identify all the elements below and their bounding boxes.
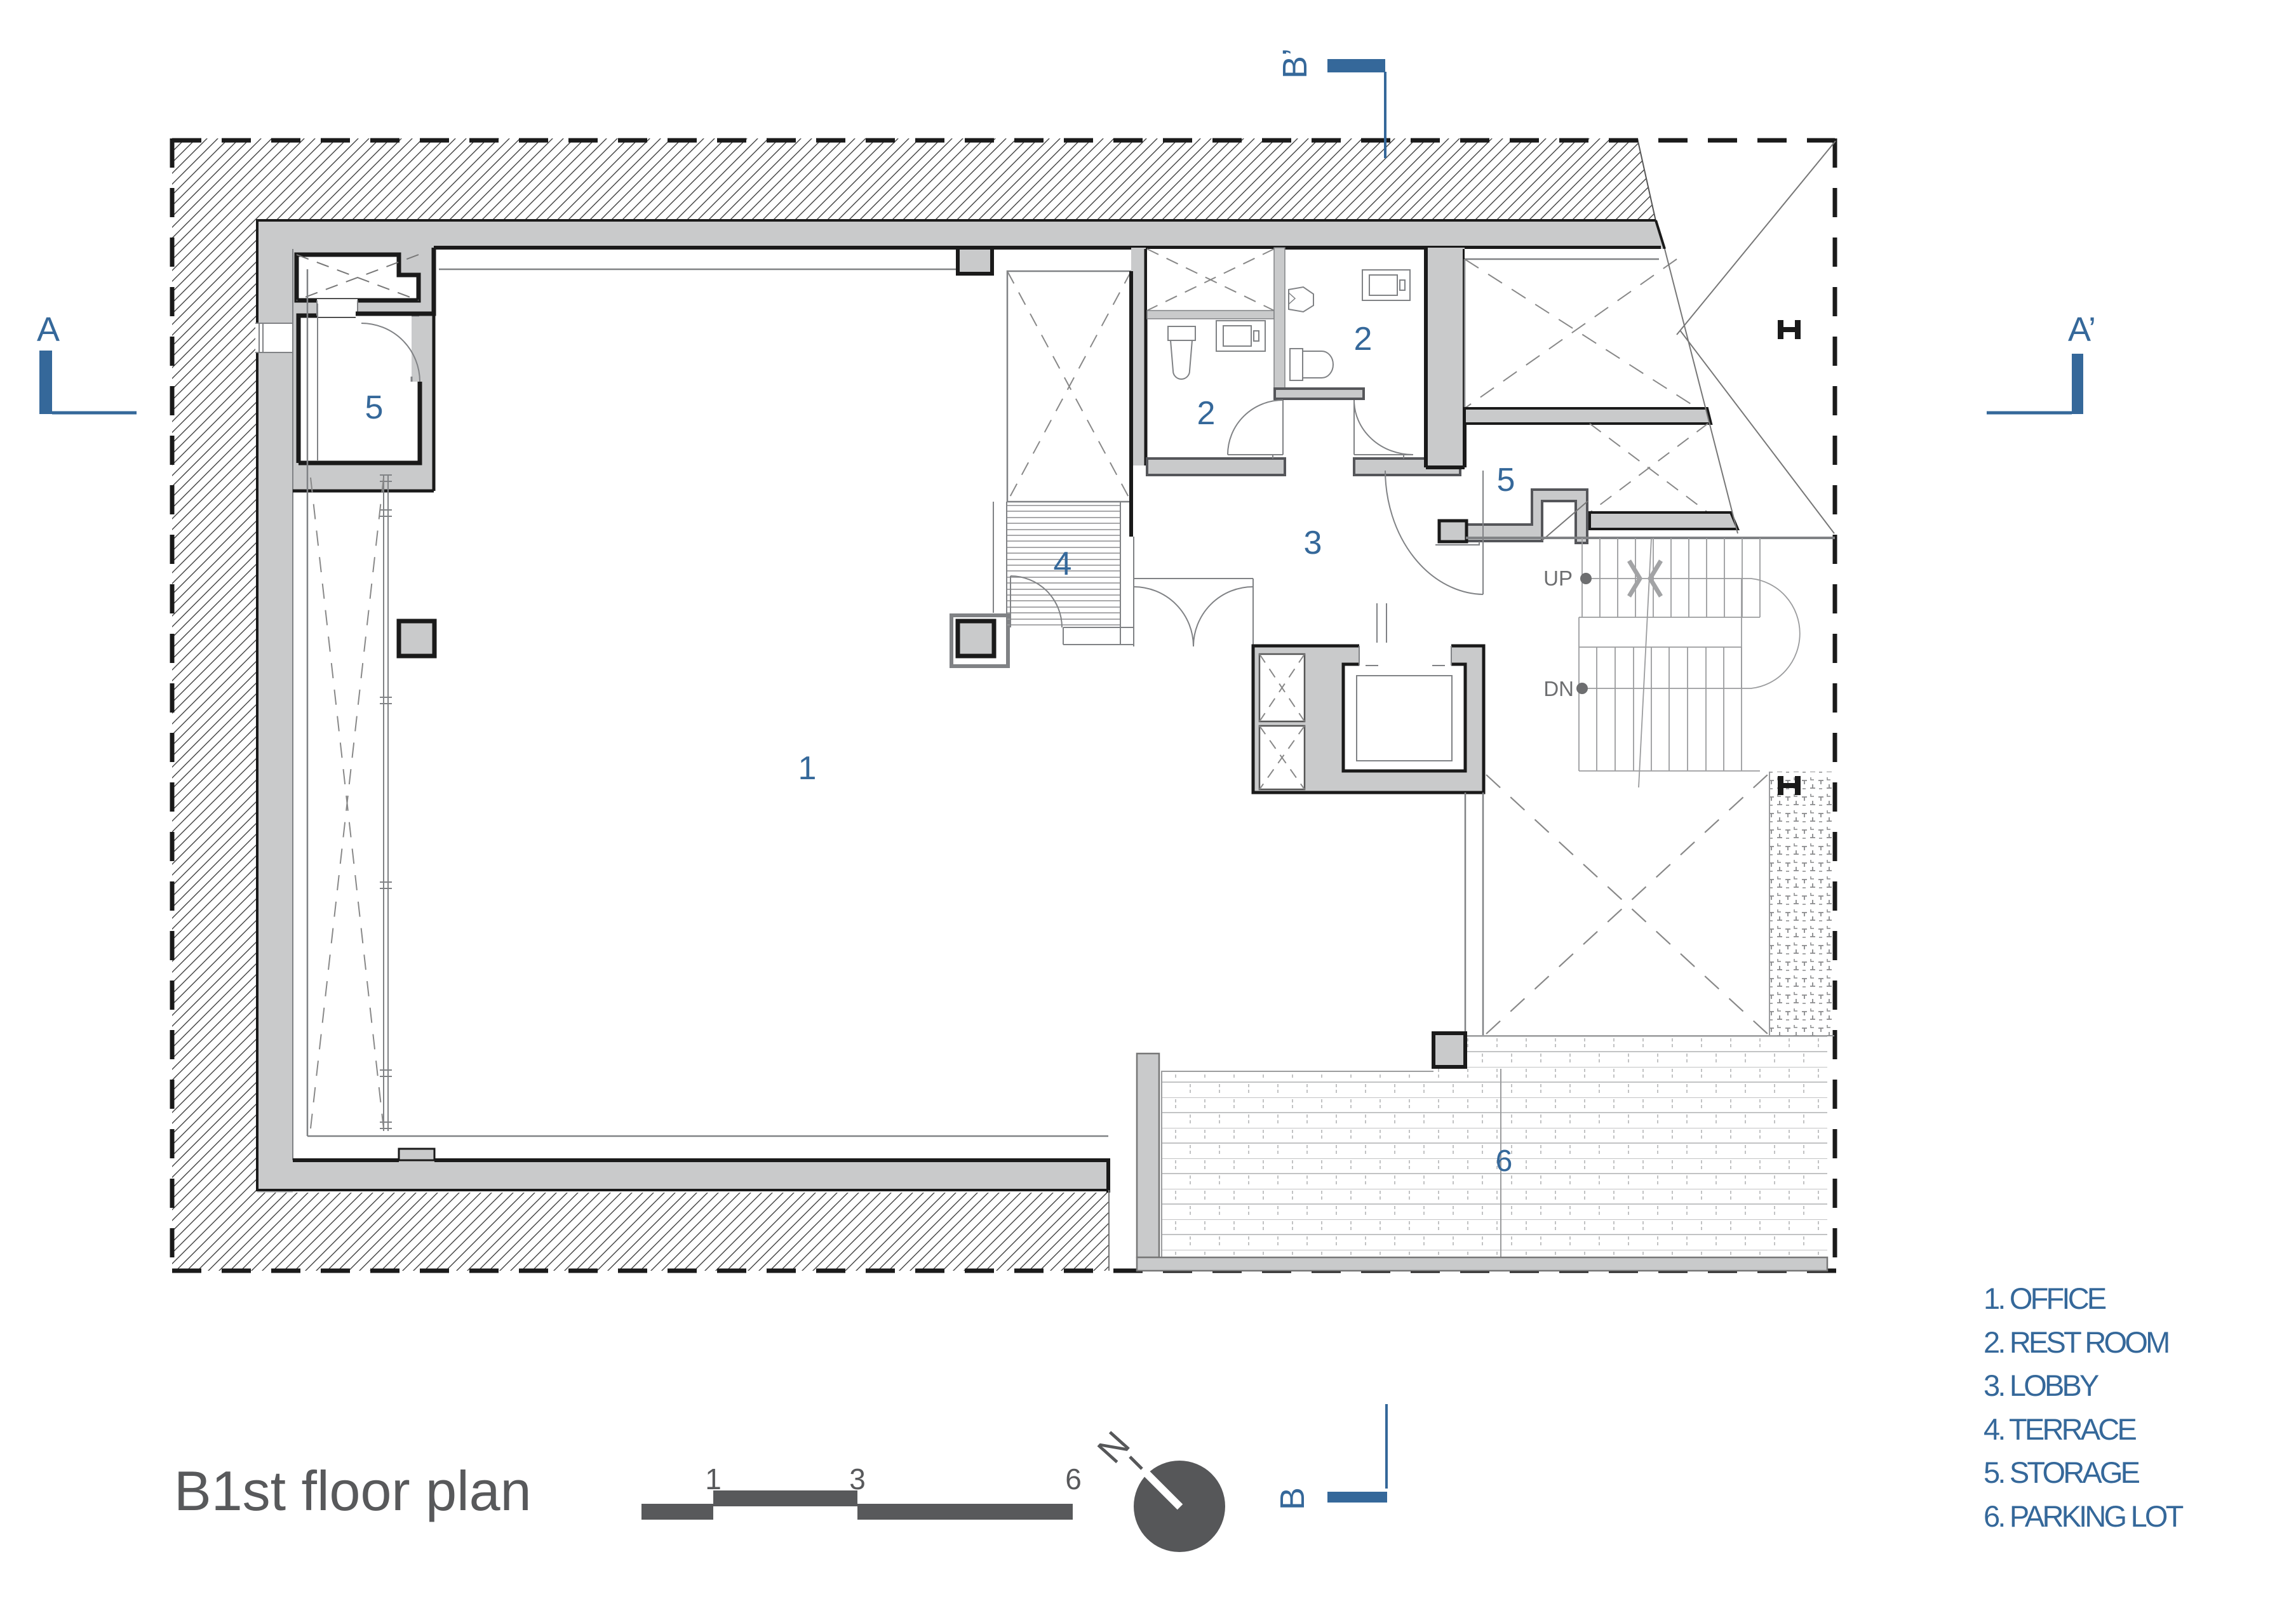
svg-text:5: 5	[365, 389, 384, 426]
svg-text:2. REST ROOM: 2. REST ROOM	[1984, 1325, 2168, 1359]
svg-text:B: B	[1273, 1487, 1312, 1510]
svg-text:6: 6	[1065, 1463, 1082, 1496]
svg-text:A’: A’	[2068, 311, 2096, 349]
svg-text:B’: B’	[1276, 48, 1314, 79]
svg-text:5: 5	[1497, 462, 1515, 499]
svg-text:1: 1	[798, 750, 817, 787]
svg-text:6. PARKING LOT: 6. PARKING LOT	[1984, 1499, 2184, 1533]
svg-text:B1st floor plan: B1st floor plan	[174, 1459, 532, 1522]
svg-text:4: 4	[1054, 546, 1072, 582]
svg-text:A: A	[37, 311, 60, 349]
svg-text:5. STORAGE: 5. STORAGE	[1984, 1456, 2140, 1489]
svg-text:2: 2	[1197, 395, 1216, 432]
svg-text:4. TERRACE: 4. TERRACE	[1984, 1412, 2136, 1446]
svg-text:DN: DN	[1543, 677, 1574, 700]
svg-text:6: 6	[1496, 1144, 1513, 1178]
svg-text:UP: UP	[1543, 566, 1573, 590]
svg-text:3: 3	[1304, 525, 1322, 561]
svg-text:1: 1	[705, 1463, 722, 1496]
svg-text:3. LOBBY: 3. LOBBY	[1984, 1369, 2099, 1402]
svg-text:3: 3	[849, 1463, 866, 1496]
svg-text:2: 2	[1354, 321, 1373, 358]
svg-text:1. OFFICE: 1. OFFICE	[1984, 1282, 2106, 1315]
